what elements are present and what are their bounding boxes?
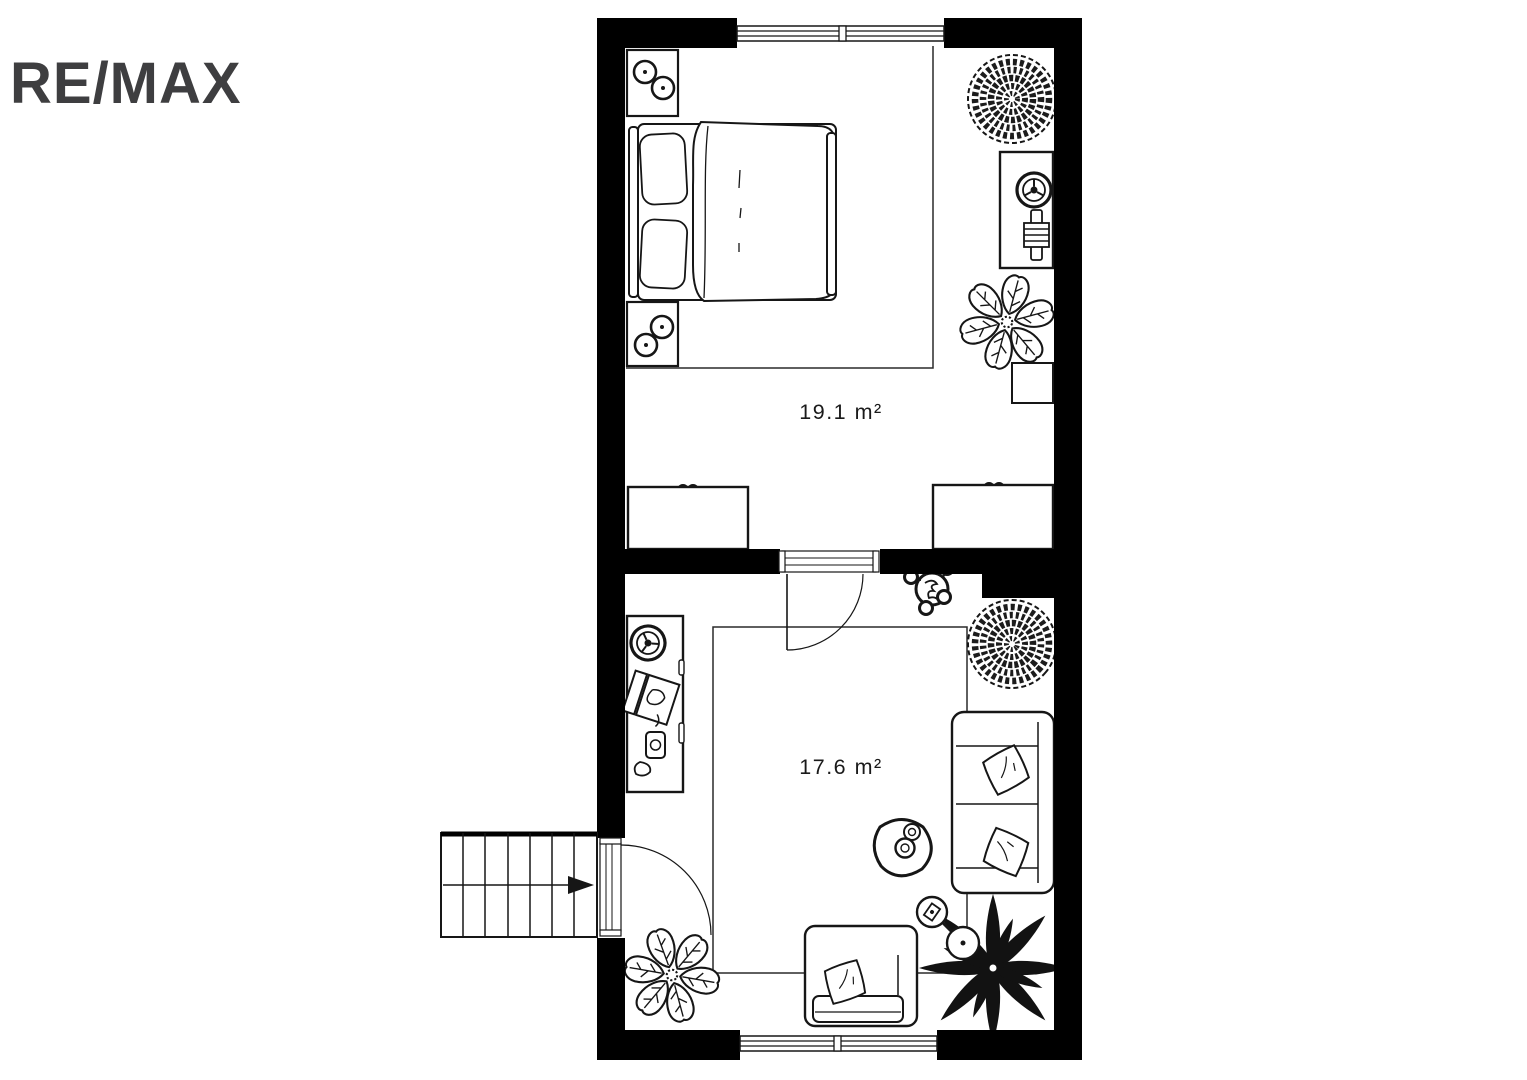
wall-bottom-left — [597, 1030, 740, 1060]
wall-bottom-right — [937, 1030, 1082, 1060]
window-top — [737, 26, 944, 41]
desk-handle — [679, 723, 684, 743]
window-bottom — [740, 1036, 937, 1051]
bedroom-area-label: 19.1 m² — [799, 400, 882, 424]
floor-lamp-icon — [917, 897, 979, 959]
wall-middle-left — [597, 549, 780, 574]
headboard — [629, 127, 638, 297]
armchair — [805, 926, 917, 1026]
round-plant-icon — [968, 55, 1056, 143]
desk-handle — [679, 660, 684, 675]
room-bedroom — [626, 46, 1065, 549]
side-table — [874, 820, 931, 876]
footboard — [827, 133, 836, 295]
wall-right — [1054, 18, 1082, 1060]
side-stool — [1012, 363, 1053, 403]
stairs — [441, 833, 597, 937]
desk-equipment-ridged — [1024, 223, 1049, 247]
double-bed — [629, 122, 836, 301]
cup-icon — [896, 839, 915, 858]
wall-left-upper — [597, 18, 625, 838]
door-interior — [779, 551, 879, 650]
nightstand-bottom — [627, 302, 678, 366]
wardrobe-left — [628, 485, 748, 549]
floor-plan-page: RE/MAX — [0, 0, 1527, 1080]
bed-pillow — [639, 133, 688, 205]
sofa — [952, 712, 1054, 893]
door-swing-arc — [787, 574, 863, 650]
wardrobe-right — [933, 483, 1053, 549]
floor-plan: 19.1 m² 17.6 m² — [0, 0, 1527, 1080]
wall-middle-jut — [982, 549, 1082, 598]
monstera-plant-icon — [605, 908, 738, 1041]
bedroom-desk — [1000, 152, 1053, 268]
door-entry — [600, 838, 711, 936]
door-swing-arc — [621, 845, 711, 935]
living-desk — [621, 616, 684, 792]
living-room-area-label: 17.6 m² — [799, 755, 882, 779]
office-chair-icon — [1017, 173, 1051, 207]
room-living — [605, 562, 1074, 1043]
bed-pillow — [639, 219, 687, 289]
blanket — [693, 122, 835, 301]
nightstand-top — [627, 50, 678, 116]
